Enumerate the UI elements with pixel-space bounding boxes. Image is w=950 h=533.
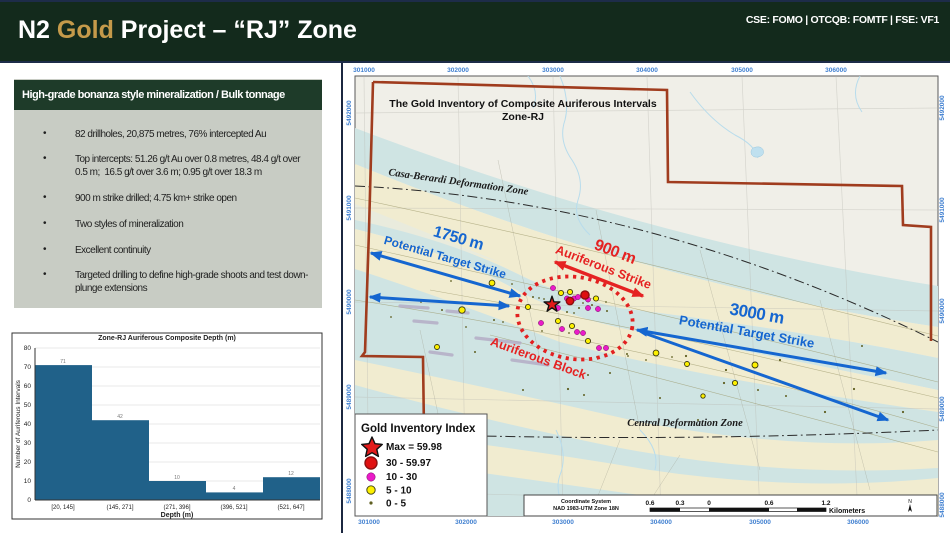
svg-text:NAD 1983-UTM Zone 18N: NAD 1983-UTM Zone 18N — [553, 506, 619, 512]
svg-text:5491000: 5491000 — [346, 195, 353, 221]
svg-text:5490000: 5490000 — [939, 298, 946, 324]
svg-text:304000: 304000 — [650, 519, 672, 526]
svg-text:5492000: 5492000 — [346, 100, 353, 126]
svg-text:5491000: 5491000 — [939, 197, 946, 223]
svg-text:0 - 5: 0 - 5 — [386, 499, 406, 510]
svg-text:5 - 10: 5 - 10 — [386, 486, 412, 497]
svg-text:Max = 59.98: Max = 59.98 — [386, 442, 442, 453]
svg-text:301000: 301000 — [353, 67, 375, 74]
svg-text:305000: 305000 — [749, 519, 771, 526]
svg-text:304000: 304000 — [636, 67, 658, 74]
svg-text:0: 0 — [707, 500, 711, 507]
svg-text:Gold Inventory Index: Gold Inventory Index — [361, 423, 476, 435]
svg-text:Central Deformation Zone: Central Deformation Zone — [627, 418, 743, 429]
svg-text:5490000: 5490000 — [346, 289, 353, 315]
svg-text:5488000: 5488000 — [939, 492, 946, 518]
svg-text:303000: 303000 — [552, 519, 574, 526]
svg-text:Zone-RJ: Zone-RJ — [502, 111, 544, 123]
svg-text:5489000: 5489000 — [939, 396, 946, 422]
svg-text:306000: 306000 — [847, 519, 869, 526]
svg-text:Coordinate System: Coordinate System — [561, 499, 611, 505]
svg-text:0.6: 0.6 — [764, 500, 773, 507]
svg-text:302000: 302000 — [455, 519, 477, 526]
svg-text:N: N — [908, 499, 912, 505]
svg-text:Kilometers: Kilometers — [829, 508, 865, 515]
svg-text:306000: 306000 — [825, 67, 847, 74]
svg-text:1.2: 1.2 — [821, 500, 830, 507]
svg-text:302000: 302000 — [447, 67, 469, 74]
svg-text:305000: 305000 — [731, 67, 753, 74]
svg-text:0.3: 0.3 — [675, 500, 684, 507]
svg-text:0.6: 0.6 — [645, 500, 654, 507]
svg-text:30 - 59.97: 30 - 59.97 — [386, 458, 431, 469]
svg-text:301000: 301000 — [358, 519, 380, 526]
svg-text:5489000: 5489000 — [346, 384, 353, 410]
svg-text:303000: 303000 — [542, 67, 564, 74]
svg-text:10 - 30: 10 - 30 — [386, 472, 418, 483]
svg-text:5492000: 5492000 — [939, 95, 946, 121]
svg-text:The Gold Inventory of Composit: The Gold Inventory of Composite Aurifero… — [389, 98, 657, 110]
svg-text:5488000: 5488000 — [346, 478, 353, 504]
